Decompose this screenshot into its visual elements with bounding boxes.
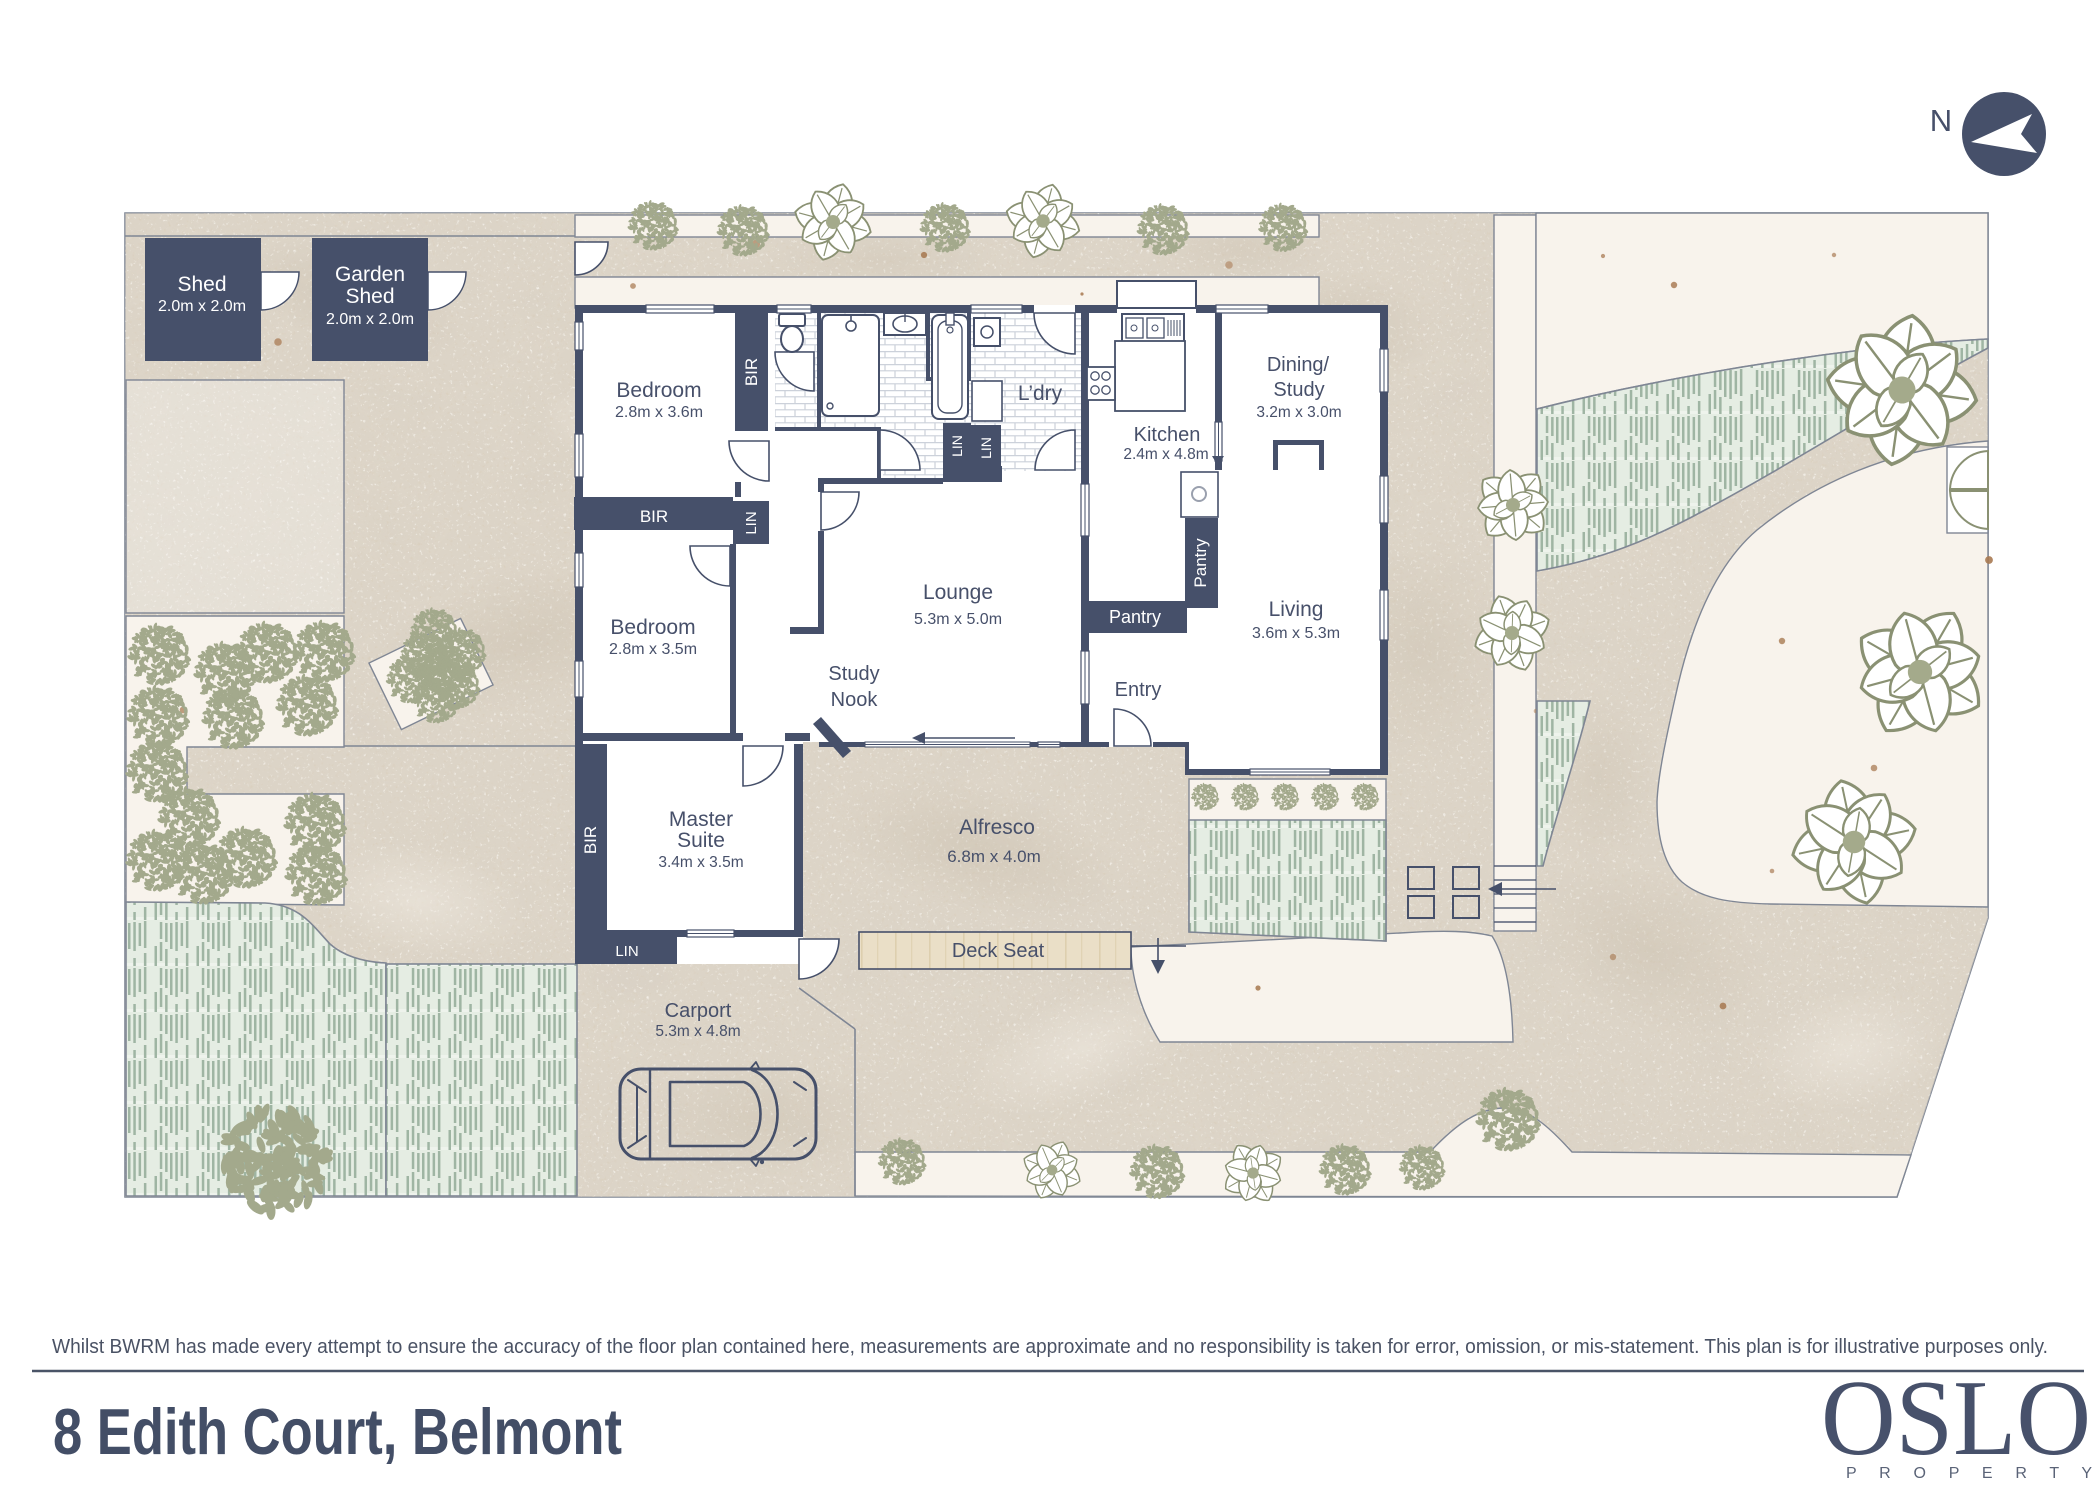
svg-text:Kitchen: Kitchen (1134, 424, 1201, 446)
svg-text:BIR: BIR (640, 507, 668, 526)
svg-text:8 Edith Court, Belmont: 8 Edith Court, Belmont (53, 1395, 622, 1468)
svg-text:L’dry: L’dry (1018, 382, 1063, 405)
svg-text:LIN: LIN (978, 437, 994, 459)
svg-text:5.3m x 4.8m: 5.3m x 4.8m (655, 1023, 740, 1040)
svg-text:Suite: Suite (677, 829, 725, 852)
svg-text:Whilst BWRM has made every at: Whilst BWRM has made every attempt to en… (52, 1336, 2048, 1358)
svg-text:5.3m x 5.0m: 5.3m x 5.0m (914, 611, 1002, 628)
svg-text:Shed: Shed (345, 285, 394, 308)
svg-text:LIN: LIN (615, 943, 638, 960)
svg-text:Bedroom: Bedroom (610, 616, 695, 639)
svg-text:BIR: BIR (742, 358, 761, 386)
svg-text:LIN: LIN (949, 435, 965, 457)
svg-text:2.8m x 3.5m: 2.8m x 3.5m (609, 641, 697, 658)
svg-text:6.8m x 4.0m: 6.8m x 4.0m (947, 847, 1041, 866)
svg-text:2.4m x 4.8m: 2.4m x 4.8m (1123, 446, 1208, 463)
svg-text:OSLO: OSLO (1821, 1359, 2091, 1478)
svg-text:Lounge: Lounge (923, 581, 993, 604)
svg-text:3.2m x 3.0m: 3.2m x 3.0m (1256, 404, 1341, 421)
svg-text:Entry: Entry (1115, 679, 1162, 701)
svg-text:Dining/: Dining/ (1267, 354, 1330, 376)
svg-text:3.4m x 3.5m: 3.4m x 3.5m (658, 854, 743, 871)
svg-text:Nook: Nook (831, 689, 879, 711)
svg-text:BIR: BIR (581, 826, 600, 854)
svg-text:Study: Study (828, 663, 879, 685)
svg-text:Shed: Shed (177, 273, 226, 296)
svg-text:LIN: LIN (743, 511, 760, 534)
svg-text:Carport: Carport (665, 1000, 732, 1022)
svg-text:P R O P E R T Y: P R O P E R T Y (1846, 1465, 2092, 1482)
svg-text:Deck Seat: Deck Seat (952, 940, 1045, 962)
svg-text:Pantry: Pantry (1109, 607, 1161, 627)
svg-text:Alfresco: Alfresco (959, 816, 1035, 839)
svg-text:Living: Living (1269, 598, 1324, 621)
svg-text:2.0m x 2.0m: 2.0m x 2.0m (326, 311, 414, 328)
svg-text:Study: Study (1273, 379, 1324, 401)
svg-text:3.6m x 5.3m: 3.6m x 5.3m (1252, 625, 1340, 642)
svg-text:2.0m x 2.0m: 2.0m x 2.0m (158, 298, 246, 315)
svg-text:Master: Master (669, 808, 733, 831)
svg-text:Pantry: Pantry (1191, 538, 1210, 588)
svg-text:Garden: Garden (335, 263, 405, 286)
svg-text:N: N (1930, 103, 1952, 138)
svg-text:Bedroom: Bedroom (616, 379, 701, 402)
svg-text:2.8m x 3.6m: 2.8m x 3.6m (615, 404, 703, 421)
